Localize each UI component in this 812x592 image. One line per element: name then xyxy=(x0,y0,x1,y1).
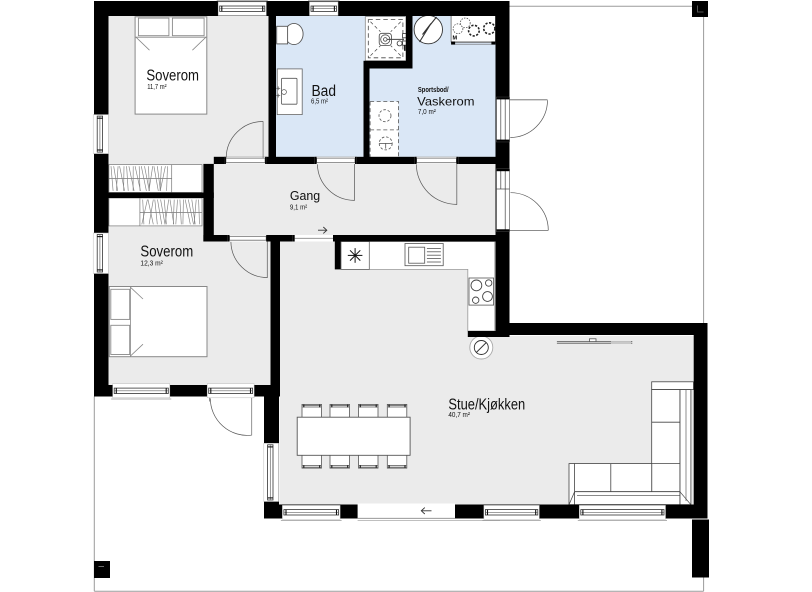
svg-text:6,5 m²: 6,5 m² xyxy=(311,96,328,105)
svg-text:M: M xyxy=(453,36,458,42)
svg-text:40,7 m²: 40,7 m² xyxy=(448,410,470,419)
svg-text:7,0 m²: 7,0 m² xyxy=(418,107,436,116)
svg-text:9,1 m²: 9,1 m² xyxy=(290,203,308,212)
svg-text:12,3 m²: 12,3 m² xyxy=(140,259,163,268)
svg-text:11,7 m²: 11,7 m² xyxy=(147,82,167,91)
svg-text:Sportsbod/: Sportsbod/ xyxy=(418,85,449,94)
svg-text:Gang: Gang xyxy=(290,188,320,203)
